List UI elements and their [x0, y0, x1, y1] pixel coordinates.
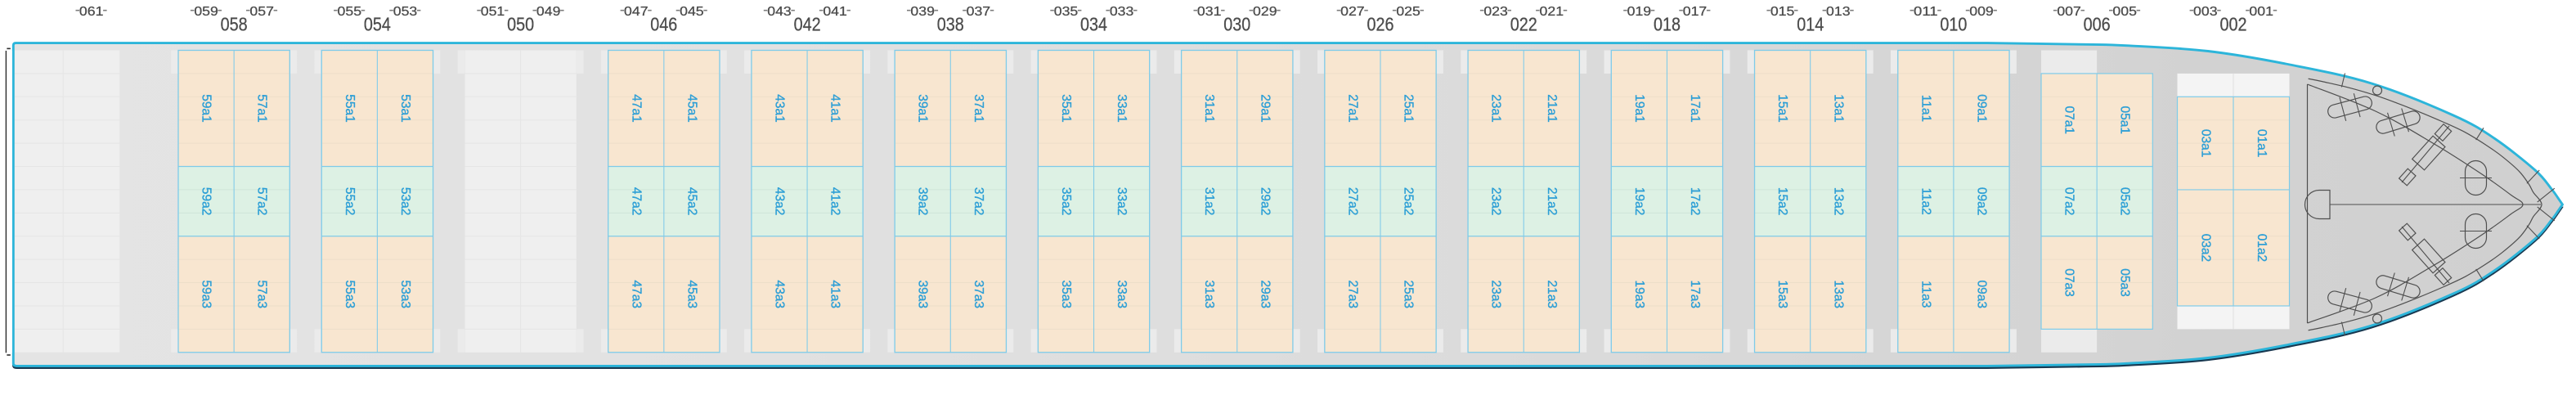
svg-text:37a3: 37a3	[972, 281, 985, 308]
svg-text:55a3: 55a3	[343, 281, 357, 308]
svg-text:002: 002	[2220, 13, 2247, 34]
svg-text:021: 021	[1540, 5, 1564, 19]
svg-text:57a3: 57a3	[255, 281, 269, 308]
svg-text:13a3: 13a3	[1831, 281, 1845, 308]
svg-text:31a2: 31a2	[1202, 187, 1216, 215]
svg-text:058: 058	[221, 13, 248, 34]
svg-text:007: 007	[2057, 5, 2081, 19]
svg-text:17a2: 17a2	[1688, 187, 1702, 215]
svg-text:031: 031	[1197, 5, 1222, 19]
svg-text:011: 011	[1914, 5, 1938, 19]
svg-text:27a1: 27a1	[1345, 94, 1359, 122]
svg-text:15a3: 15a3	[1775, 281, 1789, 308]
svg-text:045: 045	[680, 5, 704, 19]
svg-text:17a1: 17a1	[1688, 94, 1702, 122]
svg-text:010: 010	[1940, 13, 1967, 34]
svg-text:53a3: 53a3	[398, 281, 412, 308]
svg-text:35a3: 35a3	[1059, 281, 1073, 308]
svg-text:029: 029	[1253, 5, 1277, 19]
svg-text:003: 003	[2193, 5, 2218, 19]
svg-text:27a2: 27a2	[1345, 187, 1359, 215]
svg-text:07a1: 07a1	[2062, 106, 2076, 133]
svg-text:55a1: 55a1	[343, 94, 357, 122]
svg-text:022: 022	[1510, 13, 1537, 34]
svg-text:25a1: 25a1	[1402, 94, 1416, 122]
svg-text:026: 026	[1367, 13, 1394, 34]
svg-text:41a1: 41a1	[828, 94, 842, 122]
svg-text:039: 039	[910, 5, 935, 19]
svg-text:001: 001	[2249, 5, 2273, 19]
svg-text:014: 014	[1797, 13, 1824, 34]
svg-text:09a3: 09a3	[1974, 281, 1988, 308]
svg-text:31a1: 31a1	[1202, 94, 1216, 122]
svg-text:41a2: 41a2	[828, 187, 842, 215]
svg-text:15a2: 15a2	[1775, 187, 1789, 215]
svg-text:050: 050	[507, 13, 534, 34]
svg-text:21a1: 21a1	[1545, 94, 1559, 122]
svg-text:45a3: 45a3	[684, 281, 698, 308]
svg-text:025: 025	[1396, 5, 1420, 19]
svg-text:25a3: 25a3	[1402, 281, 1416, 308]
svg-text:11a2: 11a2	[1919, 187, 1932, 214]
svg-text:07a3: 07a3	[2062, 268, 2076, 296]
svg-text:21a2: 21a2	[1545, 187, 1559, 215]
svg-text:19a3: 19a3	[1632, 281, 1646, 308]
svg-text:054: 054	[364, 13, 391, 34]
svg-text:45a1: 45a1	[684, 94, 698, 122]
svg-text:053: 053	[393, 5, 418, 19]
svg-text:023: 023	[1483, 5, 1508, 19]
svg-text:39a1: 39a1	[916, 94, 930, 122]
svg-text:046: 046	[650, 13, 677, 34]
svg-text:47a3: 47a3	[629, 281, 643, 308]
svg-text:55a2: 55a2	[343, 187, 357, 215]
svg-text:051: 051	[481, 5, 505, 19]
svg-text:03a1: 03a1	[2198, 129, 2212, 157]
svg-text:01a1: 01a1	[2255, 129, 2269, 157]
svg-text:013: 013	[1826, 5, 1851, 19]
svg-text:061: 061	[79, 5, 104, 19]
svg-text:31a3: 31a3	[1202, 281, 1216, 308]
svg-text:05a3: 05a3	[2118, 268, 2132, 296]
svg-text:39a3: 39a3	[916, 281, 930, 308]
svg-text:01a2: 01a2	[2255, 234, 2269, 262]
svg-text:009: 009	[1969, 5, 1994, 19]
svg-text:059: 059	[194, 5, 218, 19]
svg-text:11a1: 11a1	[1919, 95, 1932, 122]
svg-text:030: 030	[1223, 13, 1250, 34]
svg-text:21a3: 21a3	[1545, 281, 1559, 308]
svg-text:45a2: 45a2	[684, 187, 698, 215]
svg-text:038: 038	[937, 13, 964, 34]
svg-text:07a2: 07a2	[2062, 187, 2076, 215]
svg-text:09a2: 09a2	[1974, 187, 1988, 215]
svg-text:57a1: 57a1	[255, 94, 269, 122]
svg-text:043: 043	[767, 5, 792, 19]
svg-text:43a1: 43a1	[773, 94, 787, 122]
svg-text:057: 057	[249, 5, 274, 19]
svg-text:042: 042	[794, 13, 821, 34]
svg-text:59a3: 59a3	[200, 281, 213, 308]
svg-text:41a3: 41a3	[828, 281, 842, 308]
svg-text:006: 006	[2084, 13, 2111, 34]
svg-text:59a2: 59a2	[200, 187, 213, 215]
svg-text:37a2: 37a2	[972, 187, 985, 215]
svg-text:23a2: 23a2	[1489, 187, 1503, 215]
svg-text:13a2: 13a2	[1831, 187, 1845, 215]
svg-text:35a2: 35a2	[1059, 187, 1073, 215]
svg-text:47a2: 47a2	[629, 187, 643, 215]
svg-text:15a1: 15a1	[1775, 94, 1789, 122]
svg-text:33a2: 33a2	[1115, 187, 1129, 215]
svg-text:23a3: 23a3	[1489, 281, 1503, 308]
svg-text:33a1: 33a1	[1115, 94, 1129, 122]
svg-text:037: 037	[967, 5, 991, 19]
svg-text:055: 055	[338, 5, 362, 19]
svg-text:041: 041	[823, 5, 847, 19]
svg-text:017: 017	[1683, 5, 1708, 19]
svg-text:03a2: 03a2	[2198, 234, 2212, 262]
svg-text:39a2: 39a2	[916, 187, 930, 215]
svg-text:05a1: 05a1	[2118, 106, 2132, 133]
svg-text:019: 019	[1627, 5, 1652, 19]
svg-text:23a1: 23a1	[1489, 94, 1503, 122]
svg-text:11a3: 11a3	[1919, 281, 1932, 308]
svg-text:047: 047	[624, 5, 648, 19]
svg-text:19a2: 19a2	[1632, 187, 1646, 215]
svg-text:018: 018	[1654, 13, 1681, 34]
svg-text:29a1: 29a1	[1258, 94, 1272, 122]
svg-text:25a2: 25a2	[1402, 187, 1416, 215]
svg-text:27a3: 27a3	[1345, 281, 1359, 308]
svg-text:027: 027	[1340, 5, 1365, 19]
svg-text:29a2: 29a2	[1258, 187, 1272, 215]
svg-text:033: 033	[1110, 5, 1134, 19]
svg-text:33a3: 33a3	[1115, 281, 1129, 308]
svg-text:005: 005	[2112, 5, 2137, 19]
svg-text:29a3: 29a3	[1258, 281, 1272, 308]
svg-text:47a1: 47a1	[629, 94, 643, 122]
svg-text:43a2: 43a2	[773, 187, 787, 215]
svg-text:57a2: 57a2	[255, 187, 269, 215]
svg-text:19a1: 19a1	[1632, 94, 1646, 122]
svg-text:049: 049	[536, 5, 561, 19]
svg-text:35a1: 35a1	[1059, 94, 1073, 122]
svg-text:09a1: 09a1	[1974, 94, 1988, 122]
svg-text:53a2: 53a2	[398, 187, 412, 215]
svg-text:59a1: 59a1	[200, 94, 213, 122]
svg-text:53a1: 53a1	[398, 94, 412, 122]
svg-text:37a1: 37a1	[972, 94, 985, 122]
svg-text:015: 015	[1770, 5, 1795, 19]
svg-text:17a3: 17a3	[1688, 281, 1702, 308]
svg-text:13a1: 13a1	[1831, 94, 1845, 122]
svg-text:05a2: 05a2	[2118, 187, 2132, 215]
svg-text:43a3: 43a3	[773, 281, 787, 308]
svg-text:035: 035	[1054, 5, 1079, 19]
svg-text:034: 034	[1080, 13, 1107, 34]
